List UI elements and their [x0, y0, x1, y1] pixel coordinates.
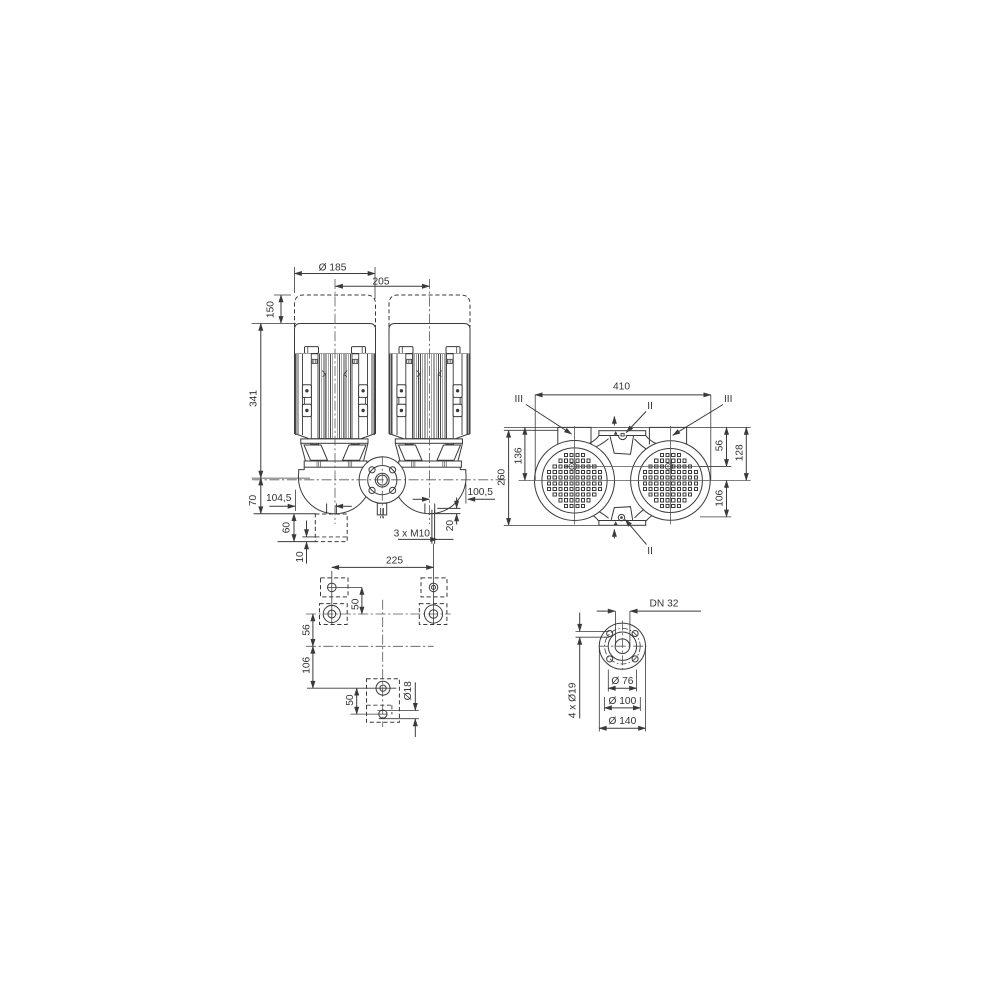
svg-text:106: 106 — [301, 656, 312, 673]
svg-text:50: 50 — [345, 694, 356, 706]
svg-text:205: 205 — [373, 277, 390, 288]
svg-text:Ø18: Ø18 — [403, 681, 414, 701]
svg-text:70: 70 — [248, 495, 259, 507]
svg-text:Ø 76: Ø 76 — [611, 676, 633, 687]
svg-text:150: 150 — [265, 301, 276, 318]
svg-text:56: 56 — [301, 624, 312, 636]
svg-text:Ø 185: Ø 185 — [319, 263, 347, 274]
svg-text:4 x Ø19: 4 x Ø19 — [567, 682, 578, 718]
svg-text:III: III — [724, 394, 733, 405]
svg-text:136: 136 — [514, 447, 525, 464]
svg-text:225: 225 — [386, 555, 403, 566]
svg-text:II: II — [647, 546, 653, 557]
svg-text:Ø 140: Ø 140 — [609, 716, 637, 727]
svg-text:50: 50 — [350, 598, 361, 610]
svg-text:II: II — [647, 401, 653, 412]
svg-text:3 x M10: 3 x M10 — [394, 528, 431, 539]
svg-text:410: 410 — [613, 381, 630, 392]
svg-text:10: 10 — [295, 551, 306, 563]
svg-text:100,5: 100,5 — [467, 487, 493, 498]
svg-text:20: 20 — [445, 520, 456, 532]
svg-text:104,5: 104,5 — [266, 493, 292, 504]
svg-text:260: 260 — [496, 468, 507, 485]
svg-text:III: III — [515, 394, 524, 405]
svg-text:106: 106 — [714, 489, 725, 506]
svg-text:128: 128 — [735, 444, 746, 461]
svg-text:56: 56 — [714, 440, 725, 452]
svg-text:341: 341 — [248, 390, 259, 407]
svg-text:Ø 100: Ø 100 — [609, 696, 637, 707]
svg-text:DN 32: DN 32 — [650, 598, 679, 609]
svg-text:60: 60 — [282, 522, 293, 534]
